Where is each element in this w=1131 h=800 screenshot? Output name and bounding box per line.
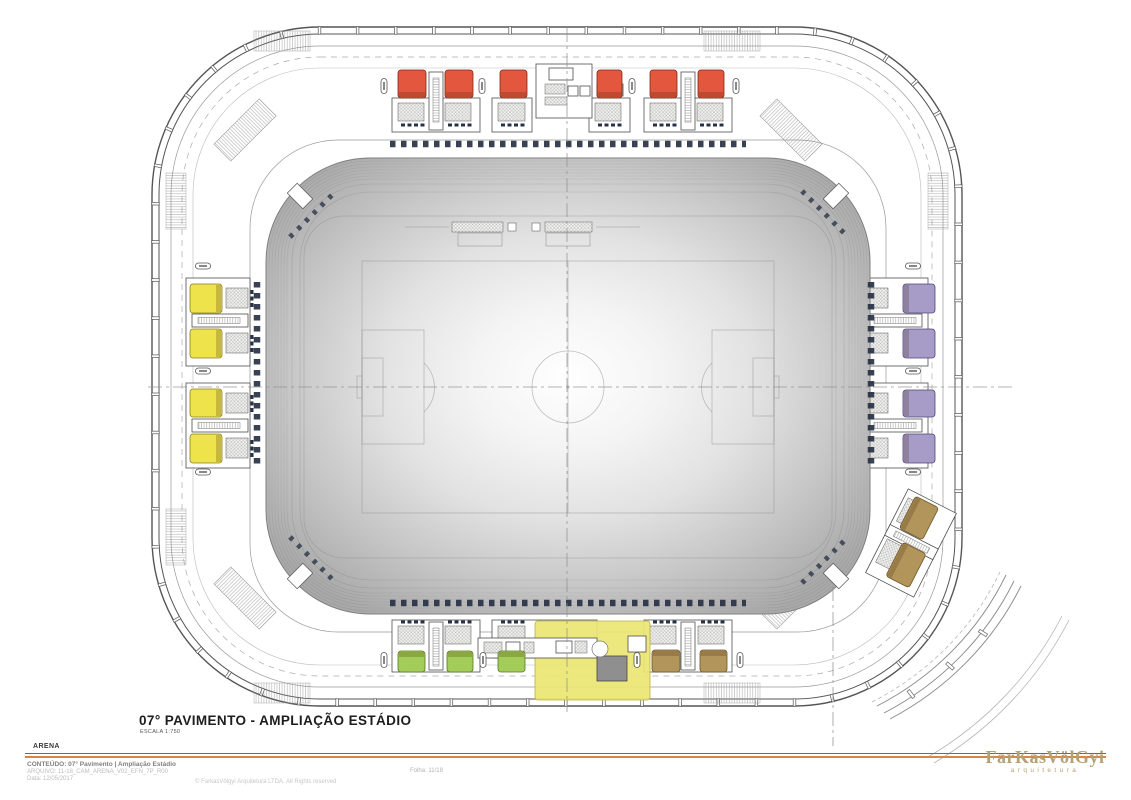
seating-bowl — [266, 158, 870, 614]
zone-underlay — [535, 621, 650, 700]
stair-band-north-right — [704, 31, 760, 51]
zone-box-north-boxes-red — [698, 70, 724, 98]
stair-wedge-top-left — [214, 99, 276, 161]
west-stair-1-flight — [198, 318, 240, 324]
zone-box-south-boxes-green — [398, 651, 425, 672]
west-stair-2-flight — [198, 423, 240, 429]
zone-box-service-area-south — [535, 621, 650, 700]
zone-box-south-boxes-green — [447, 651, 473, 672]
zone-box-north-boxes-red — [650, 70, 677, 98]
firm-logo-name: FarKasVölGyi — [980, 747, 1110, 767]
title-block-accent-rule — [25, 756, 1106, 759]
stair-band-west-upper — [166, 173, 186, 229]
service-block — [597, 656, 627, 681]
zone-box-north-boxes-red — [597, 70, 622, 98]
scoreboard-left — [452, 222, 503, 232]
zone-box-east-boxes-purple — [903, 390, 935, 417]
stair-band-north-left — [254, 31, 310, 51]
spiral-stair-icon — [592, 641, 608, 657]
copyright-label: © FarkasVölgyi Arquitetura LTDA. All Rig… — [195, 779, 336, 785]
south-stair-1-flight — [433, 628, 439, 666]
zone-box-west-boxes-yellow — [190, 284, 222, 313]
north-stair-2-flight — [685, 78, 691, 122]
north-stair-1-flight — [433, 78, 439, 122]
zone-box-south-boxes-tan — [700, 650, 727, 672]
title-block-divider — [25, 753, 1106, 754]
zone-box-west-boxes-yellow — [190, 434, 222, 463]
scale-label: ESCALA 1:750 — [140, 729, 180, 735]
zone-box-south-boxes-green — [498, 651, 525, 672]
stair-wedge-top-right — [760, 99, 822, 161]
south-stair-2-flight — [685, 628, 691, 666]
zone-box-north-boxes-red — [500, 70, 527, 98]
stair-band-south-left — [254, 683, 310, 703]
stair-band-east-upper — [928, 173, 948, 229]
zone-box-east-boxes-purple — [903, 434, 935, 463]
zone-box-north-boxes-red — [398, 70, 426, 98]
sheet-number-label: Folha: 11/18 — [410, 768, 443, 774]
scoreboard-right — [545, 222, 592, 232]
stair-wedge-bottom-left — [214, 567, 276, 629]
stair-band-west-lower — [166, 509, 186, 565]
date-label: Data: 12/05/2017 — [27, 776, 73, 782]
page-title: 07° PAVIMENTO - AMPLIAÇÃO ESTÁDIO — [139, 713, 411, 728]
stadium-plan-drawing — [0, 0, 1131, 800]
east-stair-2-flight — [874, 423, 916, 429]
zone-box-west-boxes-yellow — [190, 389, 222, 417]
zone-box-north-boxes-red — [445, 70, 473, 98]
file-label: ARQUIVO: 11-18_CAM_ARENA_V02_EFN_7P_R00 — [27, 769, 168, 775]
project-label: ARENA — [33, 743, 60, 750]
stair-band-south-right — [704, 683, 760, 703]
zone-box-west-boxes-yellow — [190, 329, 222, 358]
content-label: CONTEÚDO: 07° Pavimento | Ampliação Está… — [27, 761, 176, 768]
zone-box-east-boxes-purple — [903, 329, 935, 358]
firm-logo-subtitle: arquitetura — [980, 767, 1110, 774]
firm-logo: FarKasVölGyi arquitetura — [980, 747, 1110, 774]
drawing-sheet: 07° PAVIMENTO - AMPLIAÇÃO ESTÁDIO ESCALA… — [0, 0, 1131, 800]
zone-box-south-boxes-tan — [652, 650, 680, 672]
east-stair-1-flight — [874, 318, 916, 324]
zone-box-east-boxes-purple — [903, 284, 935, 313]
